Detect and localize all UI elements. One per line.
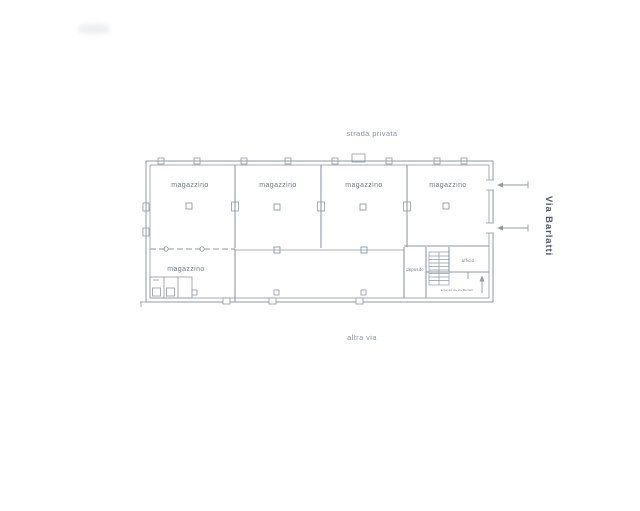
room-label-magazzino-1: magazzino bbox=[171, 182, 208, 189]
wc-block bbox=[150, 277, 192, 298]
floor-plan-drawing: strada privata Via Barlatti altra via ma… bbox=[0, 0, 640, 511]
wc-fixture bbox=[153, 288, 161, 296]
room-label-magazzino-2: magazzino bbox=[259, 182, 296, 189]
column bbox=[360, 204, 366, 210]
street-label-via-barlatti: Via Barlatti bbox=[543, 196, 554, 256]
column bbox=[361, 290, 366, 295]
room-label-magazzino-4: magazzino bbox=[429, 182, 466, 189]
wc-fixture bbox=[167, 288, 175, 296]
column bbox=[192, 290, 197, 295]
column bbox=[274, 290, 279, 295]
street-entrance-arrows bbox=[497, 182, 528, 232]
column bbox=[443, 203, 449, 209]
street-label-strada-privata: strada privata bbox=[346, 129, 397, 138]
column bbox=[274, 204, 280, 210]
street-label-altra-via: altra via bbox=[347, 333, 377, 342]
corridor-note-label: accesso da via Barlatti bbox=[441, 288, 474, 292]
room-label-deposito: deposito bbox=[406, 267, 424, 272]
columns-bottom-row bbox=[274, 290, 366, 295]
corridor-direction-arrow bbox=[480, 276, 485, 294]
top-room-partitions bbox=[232, 165, 411, 248]
entrance-arrow-lower bbox=[497, 225, 528, 232]
top-wall-window-marks bbox=[158, 154, 467, 164]
entrance-arrow-upper bbox=[497, 182, 528, 189]
room-label-magazzino-5: magazzino bbox=[167, 266, 204, 273]
bottom-wall-door-openings bbox=[223, 298, 363, 304]
bottom-left-room-walls bbox=[192, 249, 235, 302]
room-label-ufficio: ufficio bbox=[462, 258, 475, 263]
mid-divider-wall bbox=[150, 247, 404, 253]
room-label-magazzino-3: magazzino bbox=[345, 182, 382, 189]
building-linework bbox=[140, 154, 528, 307]
column bbox=[186, 203, 192, 209]
scanned-floor-plan-page: strada privata Via Barlatti altra via ma… bbox=[0, 0, 640, 511]
staircase bbox=[429, 252, 449, 285]
